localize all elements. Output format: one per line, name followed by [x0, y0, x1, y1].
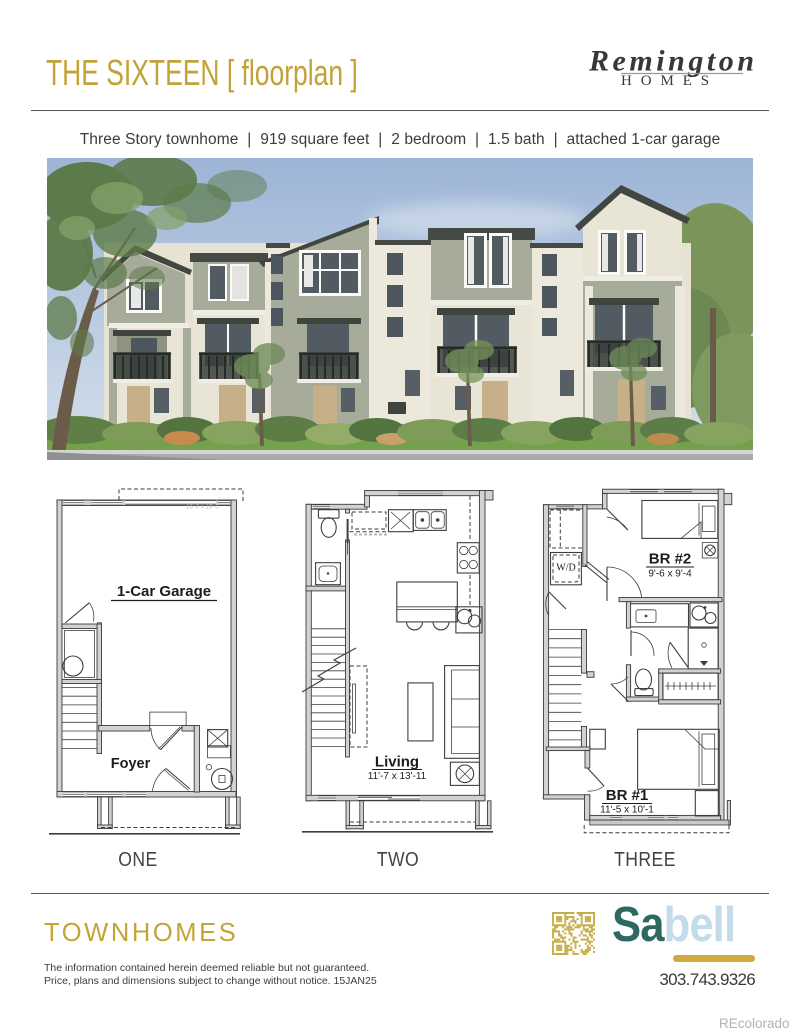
svg-text:11'-7 x 13'-11: 11'-7 x 13'-11: [368, 771, 427, 782]
svg-text:1-Car Garage: 1-Car Garage: [117, 583, 211, 600]
svg-text:W/D: W/D: [556, 563, 575, 574]
svg-text:Living: Living: [375, 754, 419, 771]
svg-text:BR #1: BR #1: [606, 787, 649, 804]
svg-text:11'-5 x 10'-1: 11'-5 x 10'-1: [600, 805, 654, 816]
svg-text:HOMES: HOMES: [621, 73, 718, 89]
svg-text:BR #2: BR #2: [649, 551, 692, 568]
svg-text:Foyer: Foyer: [111, 756, 151, 772]
svg-text:9'-6 x 9'-4: 9'-6 x 9'-4: [648, 569, 692, 580]
svg-text:16'-0 x 19'-0: 16'-0 x 19'-0: [186, 505, 219, 511]
